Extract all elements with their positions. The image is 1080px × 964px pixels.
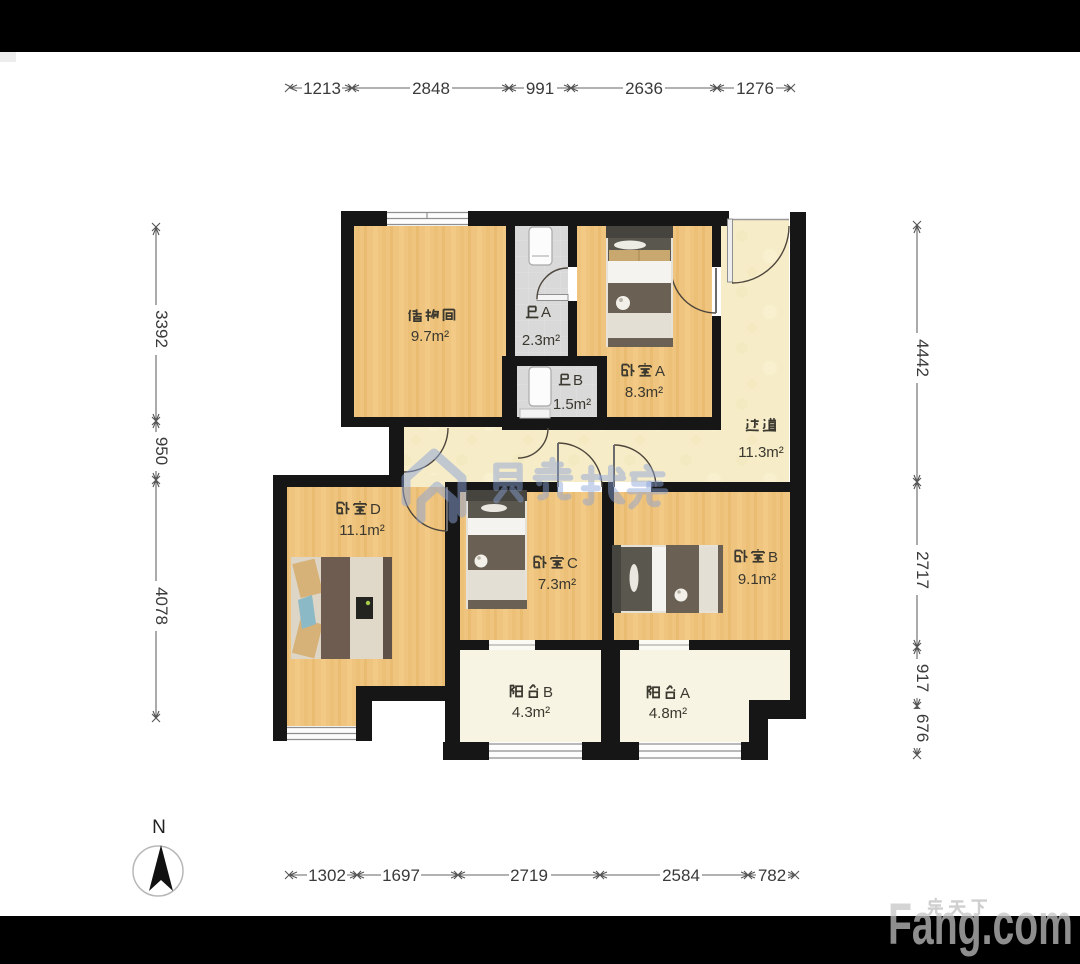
svg-text:7.3m²: 7.3m² [538,576,576,593]
svg-text:1302: 1302 [308,866,346,885]
svg-text:676: 676 [913,714,932,742]
svg-text:9.7m²: 9.7m² [411,328,449,345]
svg-text:11.1m²: 11.1m² [339,522,385,539]
svg-text:2717: 2717 [913,551,932,589]
svg-text:4.3m²: 4.3m² [512,704,550,721]
svg-text:9.1m²: 9.1m² [738,571,776,588]
svg-text:A: A [655,363,665,380]
svg-text:2636: 2636 [625,79,663,98]
svg-text:11.3m²: 11.3m² [738,444,784,461]
svg-text:782: 782 [758,866,786,885]
svg-text:A: A [541,304,551,321]
svg-text:950: 950 [152,437,171,465]
svg-text:B: B [543,684,553,701]
svg-text:3392: 3392 [152,310,171,348]
svg-text:4078: 4078 [152,587,171,625]
svg-text:1.5m²: 1.5m² [553,396,591,413]
svg-text:C: C [567,555,578,572]
svg-text:1276: 1276 [736,79,774,98]
svg-text:N: N [152,817,166,838]
svg-text:A: A [680,685,690,702]
svg-text:B: B [573,372,583,389]
svg-text:2719: 2719 [510,866,548,885]
svg-text:2584: 2584 [662,866,700,885]
svg-text:2848: 2848 [412,79,450,98]
svg-text:991: 991 [526,79,554,98]
svg-text:B: B [768,549,778,566]
svg-text:4442: 4442 [913,339,932,377]
svg-text:4.8m²: 4.8m² [649,705,687,722]
svg-text:2.3m²: 2.3m² [522,332,560,349]
svg-text:1697: 1697 [382,866,420,885]
svg-text:8.3m²: 8.3m² [625,384,663,401]
svg-text:D: D [370,501,381,518]
svg-text:917: 917 [913,664,932,692]
svg-text:1213: 1213 [303,79,341,98]
